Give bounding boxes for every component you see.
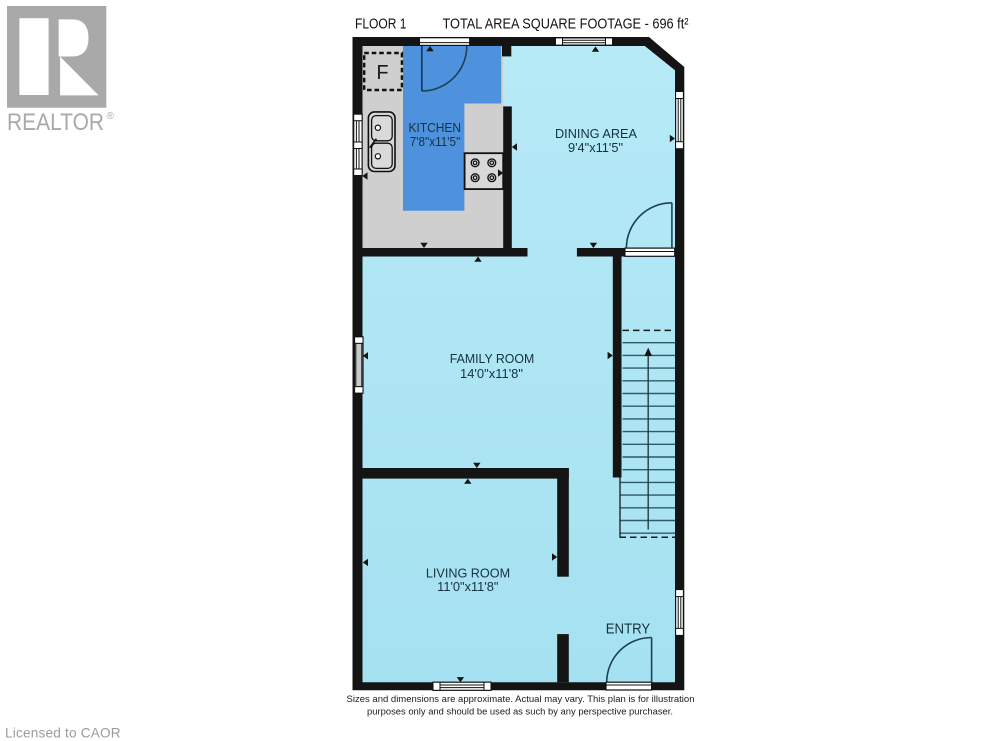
svg-text:®: ® [107,111,115,122]
svg-text:7'8"x11'5": 7'8"x11'5" [410,135,461,149]
svg-text:14'0"x11'8": 14'0"x11'8" [460,367,523,381]
svg-text:KITCHEN: KITCHEN [409,120,462,135]
svg-text:FAMILY ROOM: FAMILY ROOM [450,351,535,366]
svg-text:REALTOR: REALTOR [7,109,104,136]
svg-text:FLOOR 1: FLOOR 1 [355,16,407,33]
svg-text:F: F [376,62,388,84]
svg-text:purposes only and should be us: purposes only and should be used as such… [367,707,673,718]
svg-text:TOTAL AREA SQUARE FOOTAGE - 69: TOTAL AREA SQUARE FOOTAGE - 696 ft² [443,16,689,33]
svg-text:Licensed to CAOR: Licensed to CAOR [5,726,121,741]
svg-text:ENTRY: ENTRY [606,620,651,637]
svg-text:DINING AREA: DINING AREA [555,126,637,141]
svg-text:11'0"x11'8": 11'0"x11'8" [437,580,498,594]
svg-text:Sizes and dimensions are appro: Sizes and dimensions are approximate. Ac… [347,694,695,705]
svg-text:LIVING ROOM: LIVING ROOM [426,565,510,580]
svg-text:9'4"x11'5": 9'4"x11'5" [568,141,623,155]
